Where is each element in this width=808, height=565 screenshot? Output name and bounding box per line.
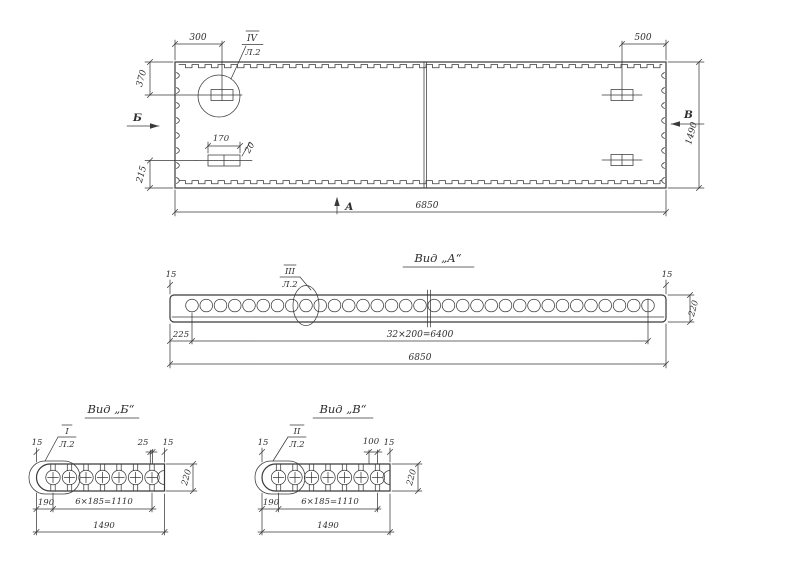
view-v-holes [271,465,384,490]
dim-1490-label: 1490 [684,121,700,146]
dim-500-label: 500 [634,33,651,43]
callout-ii-sheet: Л.2 [288,440,304,450]
view-b-title: Вид „Б“ [86,402,134,416]
va-dim-220: 220 [687,299,701,319]
panel-outline [175,62,666,188]
va-dim-total: 6850 [409,353,432,363]
view-v-edge-half-hole [383,471,390,485]
dim-300-label: 300 [189,33,206,43]
vv-dim-220: 220 [405,468,419,488]
view-b: Вид „Б“ I Л.2 15 25 15 220 190 6×185=1 [29,402,197,535]
section-marker-b: Б [132,112,142,124]
vb-dim-total: 1490 [93,521,115,531]
dim-370-label: 370 [135,69,149,88]
dim-20-label: 20 [243,140,258,156]
vv-dim-100: 100 [363,437,380,447]
detail-circle-iv [198,75,240,117]
vv-dim-190: 190 [263,498,280,508]
callout-ii-number: II [293,427,301,437]
section-arrow-b [150,123,159,128]
vb-dim-190: 190 [38,498,55,508]
section-marker-v: В [683,109,693,121]
vv-dim-15-right: 15 [384,438,395,448]
vb-dim-220: 220 [180,468,194,488]
callout-iii-sheet: Л.2 [281,280,297,290]
va-dim-15-right: 15 [662,270,673,280]
view-b-edge-half-hole [158,471,165,485]
view-a-title: Вид „А“ [413,251,461,265]
view-v-title: Вид „В“ [318,402,366,416]
callout-i-sheet: Л.2 [58,440,74,450]
dim-170-label: 170 [213,134,230,144]
dim-215-label: 215 [135,165,149,185]
vb-dim-15-right: 15 [163,438,174,448]
va-dim-holes: 32×200=6400 [387,330,454,340]
detail-ellipse-iii [293,286,319,326]
blueprint-canvas: IV Л.2 300 500 370 215 1490 6850 [0,0,808,565]
callout-i-number: I [64,427,69,437]
section-arrow-a [334,197,339,206]
section-arrow-v [671,121,680,126]
vv-dim-holes: 6×185=1110 [301,497,359,507]
callout-iii-number: III [284,267,296,277]
panel-keyed-edges [177,65,665,184]
vb-dim-holes: 6×185=1110 [75,497,133,507]
view-a-holes [186,299,655,312]
section-marker-a: А [344,201,354,213]
va-dim-15-left: 15 [166,270,177,280]
view-b-holes [46,465,159,490]
vv-dim-15-left: 15 [258,438,269,448]
embedded-anchors [196,90,642,167]
callout-iv-number: IV [246,34,259,44]
va-dim-225: 225 [172,330,189,340]
blueprint-sheet: IV Л.2 300 500 370 215 1490 6850 [0,0,808,565]
vv-dim-total: 1490 [317,521,339,531]
vb-dim-15-left: 15 [32,438,43,448]
callout-iv-sheet: Л.2 [244,48,260,58]
view-a: Вид „А“ III Л.2 15 15 225 32×200=6400 68… [166,251,702,368]
plan-view: IV Л.2 300 500 370 215 1490 6850 [127,31,704,216]
dim-6850-label: 6850 [416,201,439,211]
vb-dim-25: 25 [137,438,149,448]
view-v: Вид „В“ II Л.2 15 100 15 220 190 6×185 [255,402,422,535]
